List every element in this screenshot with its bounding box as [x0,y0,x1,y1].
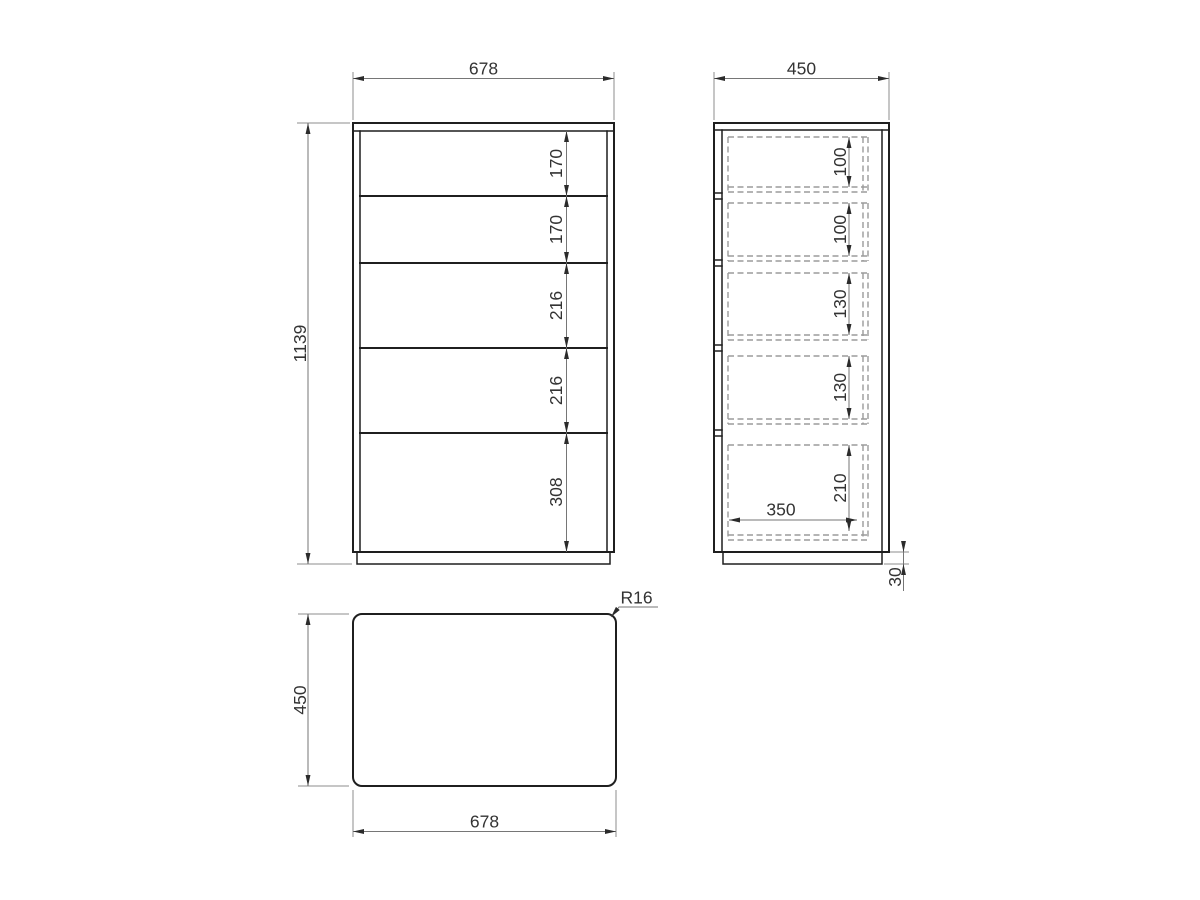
top-corner-radius-callout: R16 [611,588,658,618]
front-view: 678 1139 170 170 216 216 308 [290,59,614,565]
front-cabinet-outline [353,123,614,552]
side-base-height-dimension: 30 [884,541,909,591]
top-width-dimension: 678 [353,790,616,837]
front-drawer3-height-label: 216 [546,291,566,320]
side-drawer4-inner-height-label: 130 [830,373,850,402]
side-view: 450 100 100 130 130 210 350 30 [714,59,909,592]
front-drawer5-height-label: 308 [546,477,566,506]
top-depth-label: 450 [290,685,310,714]
side-depth-dimension: 450 [714,59,889,121]
top-depth-dimension: 450 [290,614,349,786]
side-drawer-front-gaps [714,193,722,436]
front-height-dimension: 1139 [290,123,352,564]
side-drawer3-inner-height-label: 130 [830,289,850,318]
front-width-dimension: 678 [353,59,614,121]
front-drawer1-height-label: 170 [546,149,566,178]
front-width-label: 678 [469,59,498,79]
side-drawer5-inner-height-label: 210 [830,473,850,502]
top-view: 450 678 R16 [290,588,658,838]
front-drawer-dividers [360,196,607,433]
side-base-height-label: 30 [885,567,905,587]
front-drawer2-height-label: 170 [546,215,566,244]
top-panel-outline [353,614,616,786]
top-corner-radius-label: R16 [621,588,653,608]
side-drawer-depth-label: 350 [766,500,795,520]
front-drawer-height-dimensions: 170 170 216 216 308 [546,131,567,552]
front-height-label: 1139 [290,325,310,363]
side-plinth [723,552,882,564]
side-drawer1-inner-height-label: 100 [830,147,850,176]
front-plinth [357,552,610,564]
technical-drawing-canvas: 678 1139 170 170 216 216 308 [0,0,1200,900]
side-depth-label: 450 [787,59,816,79]
side-drawer-inner-height-dimensions: 100 100 130 130 210 [830,137,850,531]
side-drawer2-inner-height-label: 100 [830,215,850,244]
top-width-label: 678 [470,812,499,832]
dresser-dimension-drawing: 678 1139 170 170 216 216 308 [0,0,1200,900]
front-drawer4-height-label: 216 [546,376,566,405]
